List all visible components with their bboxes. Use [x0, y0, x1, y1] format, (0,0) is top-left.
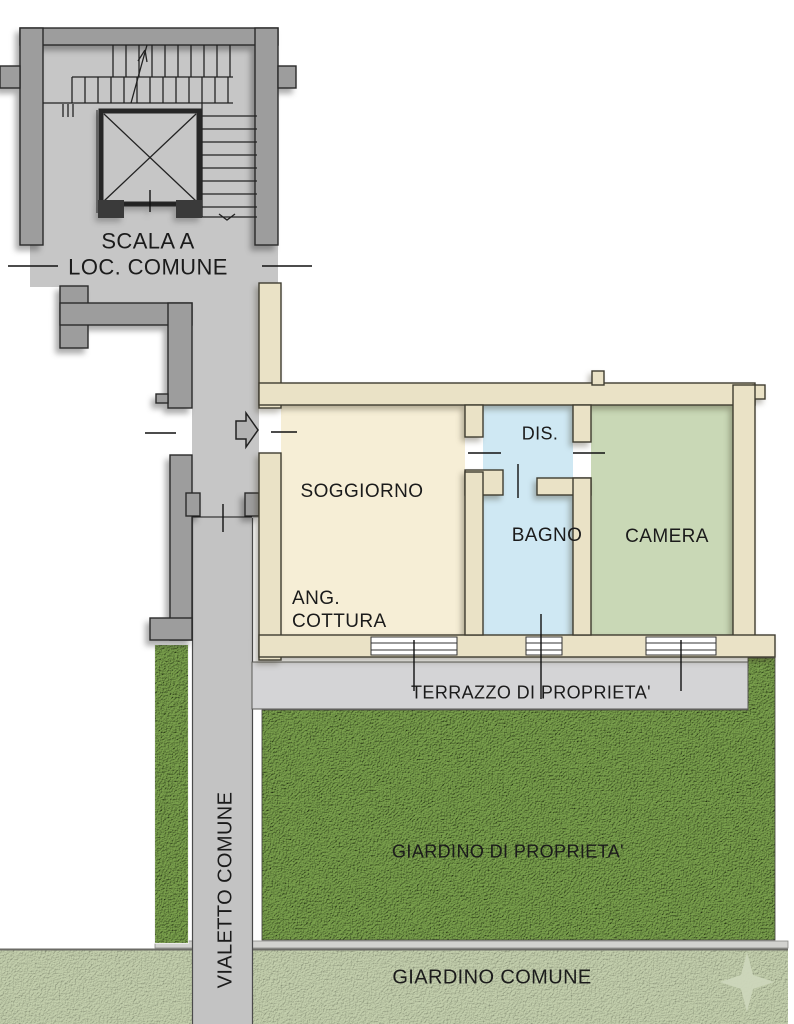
label-scala-a: SCALA A [101, 228, 194, 253]
windows [371, 637, 716, 655]
garden-left-strip [155, 645, 188, 943]
label-dis: DIS. [522, 424, 559, 445]
floorplan-linework [0, 0, 794, 1024]
label-ang-cottura-line2: COTTURA [292, 611, 387, 633]
room-fills [281, 405, 733, 635]
room-camera [591, 405, 733, 635]
label-giardino-privato: GIARDINO DI PROPRIETA' [392, 842, 624, 863]
floorplan-page: SCALA A LOC. COMUNE SOGGIORNO ANG. COTTU… [0, 0, 794, 1024]
label-vialetto-comune: VIALETTO COMUNE [215, 792, 238, 989]
label-terrazzo: TERRAZZO DI PROPRIETA' [411, 683, 651, 704]
label-giardino-comune: GIARDINO COMUNE [392, 967, 591, 990]
label-soggiorno: SOGGIORNO [301, 481, 424, 503]
label-bagno: BAGNO [512, 525, 583, 547]
label-ang-cottura-line1: ANG. [292, 588, 340, 610]
label-camera: CAMERA [625, 526, 709, 548]
label-loc-comune: LOC. COMUNE [68, 254, 228, 279]
elevator-shaft [98, 111, 202, 218]
